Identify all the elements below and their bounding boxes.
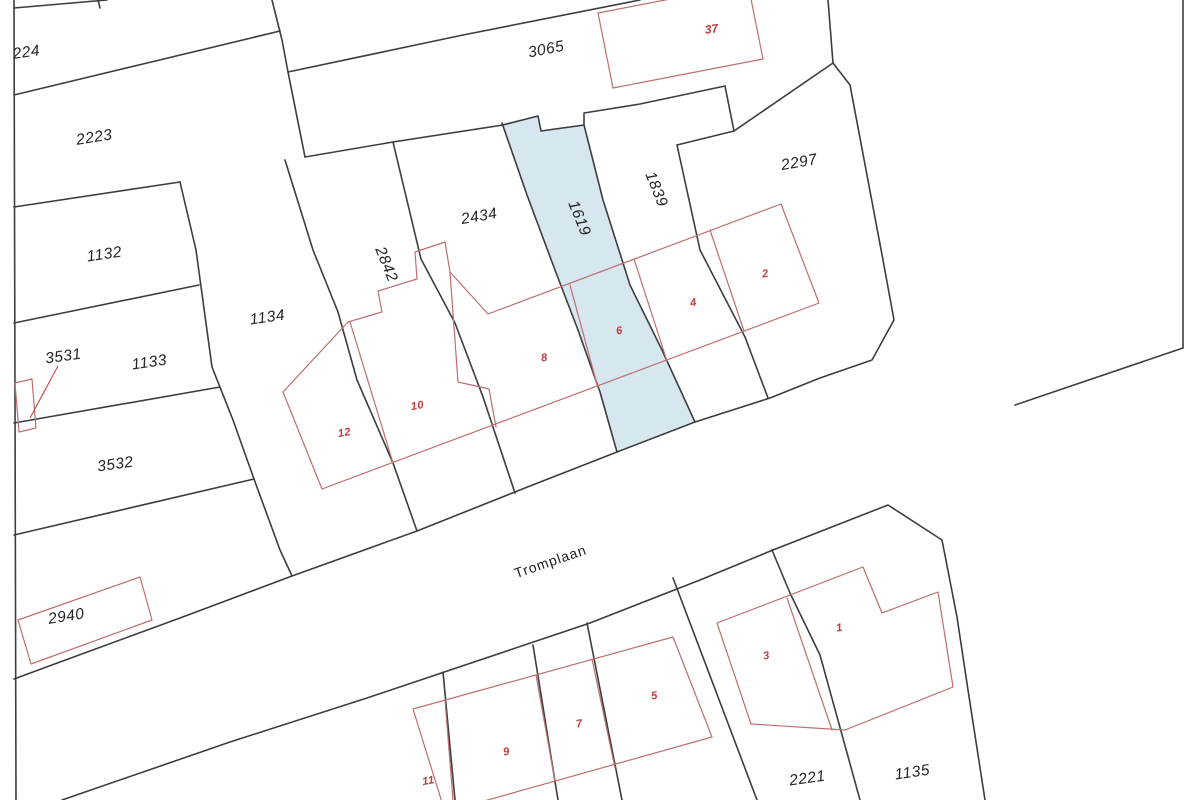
highlighted-parcel-1619 [502,116,695,452]
cadastral-map: 224 2223 1132 1133 3531 3532 1134 2940 2… [0,0,1200,800]
building-number-5: 5 [650,689,659,702]
building-number-labels: 37 12 10 8 6 4 2 11 9 7 5 3 1 [337,21,844,788]
parcel-label-1135: 1135 [894,762,931,784]
building-row-south-west [413,637,712,800]
building-divider [536,675,555,781]
boundary-line [587,623,622,800]
parcel-label-1133: 1133 [131,352,168,374]
parcel-labels: 224 2223 1132 1133 3531 3532 1134 2940 2… [11,38,931,790]
parcel-label-2223: 2223 [74,126,114,149]
building-37 [598,0,763,88]
boundary-line [285,160,417,531]
parcel-label-2297: 2297 [779,151,820,174]
boundary-line [180,182,292,576]
boundary-line [14,31,280,95]
parcel-label-3065: 3065 [527,38,566,62]
boundary-line [272,0,305,157]
label-leader-3531 [30,366,58,418]
building-3531 [15,379,36,432]
boundary-line [14,387,220,423]
map-drawing: 224 2223 1132 1133 3531 3532 1134 2940 2… [0,0,1200,800]
parcel-label-3531: 3531 [44,346,82,368]
building-number-9: 9 [502,745,511,758]
building-number-4: 4 [688,297,698,310]
boundary-line [288,0,640,72]
parcel-label-2940: 2940 [46,605,86,628]
boundary-line [14,479,254,535]
boundary-line [734,63,833,131]
building-row-south-east [717,567,953,730]
building-number-2: 2 [760,268,770,281]
boundary-line [14,285,199,323]
boundary-line [393,142,515,493]
boundary-line [14,182,180,207]
building-divider [592,659,615,768]
building-number-8: 8 [540,351,549,364]
building-divider [445,700,453,800]
building-number-37: 37 [704,21,720,37]
building-divider [450,272,496,427]
boundary-line [14,0,107,8]
boundary-line [673,578,757,800]
boundary-line [1015,348,1183,405]
boundary-line [828,0,833,63]
parcel-label-2434: 2434 [459,205,499,228]
building-number-7: 7 [575,717,584,730]
building-number-1: 1 [835,622,844,635]
boundary-line-left-border [14,0,16,800]
street-name-label: Tromplaan [512,541,589,581]
parcel-label-1132: 1132 [86,244,123,266]
parcel-boundaries [14,0,1183,800]
building-divider [350,322,393,463]
parcel-label-2221: 2221 [787,768,826,790]
boundary-line [677,145,768,398]
parcel-label-1134: 1134 [249,307,286,329]
parcel-label-224: 224 [11,42,41,63]
parcel-label-2842: 2842 [371,243,401,284]
parcel-label-3532: 3532 [96,454,134,476]
building-number-3: 3 [762,650,771,663]
parcel-label-1839: 1839 [641,169,670,209]
boundary-line [772,550,860,800]
boundary-line [443,672,455,800]
building-number-11: 11 [421,774,435,788]
building-number-12: 12 [337,426,352,440]
building-divider [787,598,832,730]
building-number-10: 10 [410,399,425,413]
boundary-line-street-south [62,505,985,800]
